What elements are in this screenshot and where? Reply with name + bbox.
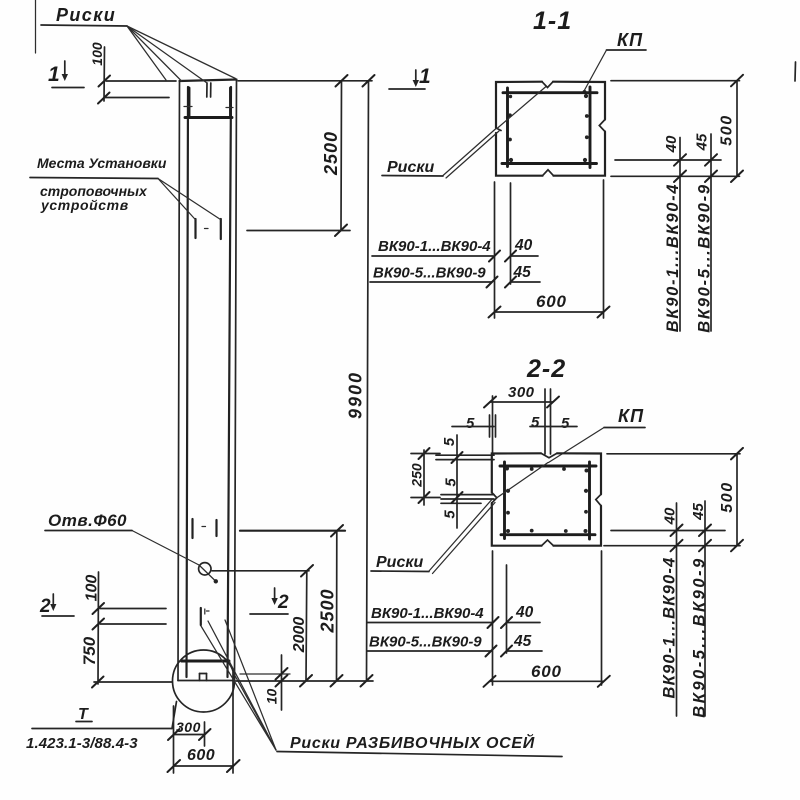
svg-text:ВК90-5...ВК90-9: ВК90-5...ВК90-9	[696, 183, 714, 332]
svg-text:2: 2	[277, 592, 289, 613]
svg-text:устройств: устройств	[40, 197, 129, 213]
svg-text:5: 5	[561, 415, 570, 432]
svg-text:2500: 2500	[318, 588, 338, 633]
svg-text:40: 40	[514, 237, 533, 254]
svg-text:250: 250	[409, 463, 425, 488]
svg-text:ВК90-1...ВК90-4: ВК90-1...ВК90-4	[664, 183, 682, 332]
svg-text:10: 10	[264, 689, 280, 705]
svg-text:300: 300	[508, 384, 535, 401]
svg-text:ВК90-1...ВК90-4: ВК90-1...ВК90-4	[661, 557, 679, 699]
svg-text:Места Установки: Места Установки	[37, 155, 167, 171]
svg-text:600: 600	[531, 662, 562, 681]
svg-text:1.423.1-3/88.4-3: 1.423.1-3/88.4-3	[26, 735, 138, 752]
svg-text:2-2: 2-2	[526, 355, 566, 383]
svg-text:5: 5	[443, 478, 460, 487]
svg-text:45: 45	[690, 503, 707, 521]
svg-text:Риски: Риски	[56, 5, 116, 25]
svg-text:2500: 2500	[321, 131, 341, 176]
svg-text:ВК90-5...ВК90-9: ВК90-5...ВК90-9	[691, 556, 709, 717]
svg-text:40: 40	[662, 507, 679, 525]
svg-text:ВК90-5...ВК90-9: ВК90-5...ВК90-9	[373, 265, 486, 282]
svg-text:КП: КП	[618, 406, 644, 426]
svg-text:2000: 2000	[291, 617, 308, 654]
svg-text:5: 5	[442, 510, 459, 519]
svg-text:300: 300	[176, 719, 201, 735]
svg-text:ВК90-1...ВК90-4: ВК90-1...ВК90-4	[378, 238, 491, 255]
svg-text:КП: КП	[617, 30, 643, 50]
svg-text:Риски: Риски	[387, 159, 434, 176]
svg-text:Риски: Риски	[376, 554, 423, 571]
svg-text:40: 40	[515, 604, 534, 621]
svg-text:600: 600	[536, 292, 567, 311]
svg-text:1-1: 1-1	[533, 7, 572, 35]
svg-text:500: 500	[719, 114, 736, 146]
svg-text:100: 100	[89, 42, 105, 66]
svg-text:2: 2	[39, 596, 51, 617]
svg-text:Т: Т	[78, 706, 89, 723]
svg-text:100: 100	[84, 575, 101, 602]
svg-text:45: 45	[513, 633, 532, 650]
svg-text:5: 5	[441, 437, 458, 446]
svg-text:ВК90-5...ВК90-9: ВК90-5...ВК90-9	[369, 634, 482, 651]
svg-text:5: 5	[466, 415, 475, 432]
svg-text:ВК90-1...ВК90-4: ВК90-1...ВК90-4	[371, 605, 484, 622]
svg-text:1: 1	[419, 65, 431, 88]
svg-text:9900: 9900	[346, 371, 366, 419]
svg-text:Риски РАЗБИВОЧНЫХ ОСЕЙ: Риски РАЗБИВОЧНЫХ ОСЕЙ	[290, 732, 535, 752]
svg-text:1: 1	[48, 63, 60, 86]
svg-text:600: 600	[187, 747, 215, 764]
svg-text:Отв.Ф60: Отв.Ф60	[48, 511, 127, 530]
svg-text:750: 750	[80, 636, 99, 665]
svg-text:5: 5	[531, 414, 540, 431]
svg-text:40: 40	[663, 135, 680, 153]
svg-text:500: 500	[719, 481, 736, 513]
svg-text:45: 45	[694, 133, 711, 151]
